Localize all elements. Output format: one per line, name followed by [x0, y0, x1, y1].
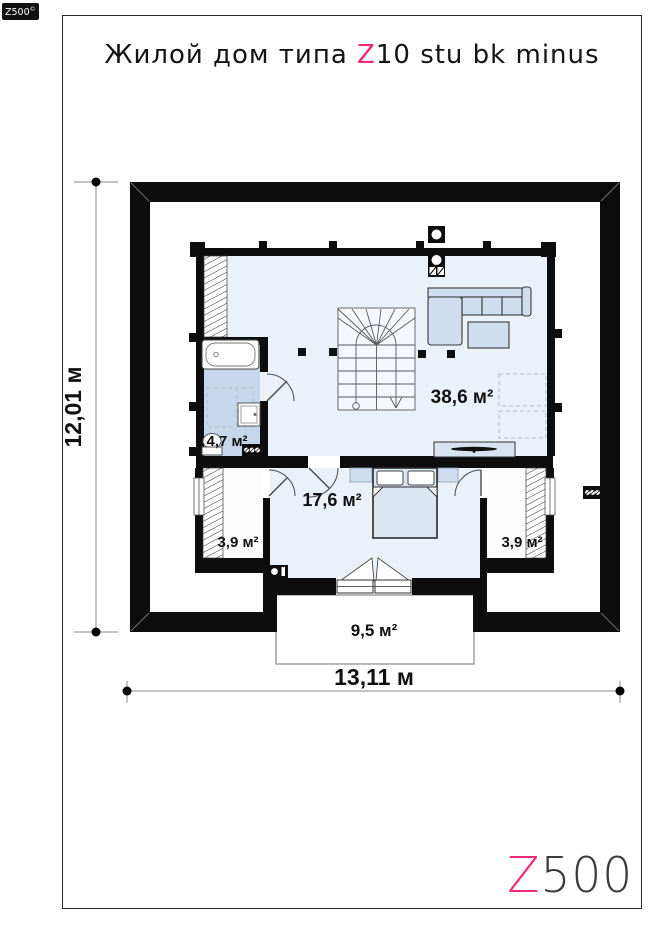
vent-grille-icon — [583, 486, 602, 499]
balcony-area-label: 9,5 м² — [351, 621, 398, 640]
staircase — [338, 308, 415, 410]
dimension-width-label: 13,11 м — [334, 664, 414, 690]
living-room-area-label: 38,6 м² — [431, 387, 494, 408]
vent-box-icon — [268, 565, 288, 578]
nightstand — [350, 468, 372, 482]
bedroom-area-label: 17,6 м² — [302, 490, 361, 510]
pillow — [408, 471, 434, 485]
window-icon — [194, 478, 204, 515]
window-icon — [545, 478, 555, 515]
bathtub — [202, 340, 259, 369]
z500-logo: Z500 — [507, 850, 633, 902]
closet-left-area-label: 3,9 м² — [217, 534, 258, 551]
logo-rest: 500 — [540, 847, 633, 904]
dimension-height-label: 12,01 м — [60, 367, 86, 448]
floor-plan: 12,01 м 13,11 м 9,5 м² — [0, 0, 655, 926]
drawing-sheet: Z500© Жилой дом типа Z10 stu bk minus 12… — [0, 0, 655, 926]
washbasin — [238, 403, 260, 426]
bathroom-area-label: 4,7 м² — [206, 433, 247, 450]
coffee-table — [468, 322, 509, 348]
dimension-height: 12,01 м — [60, 178, 118, 637]
knee-wall-top — [196, 248, 555, 256]
room-balcony: 9,5 м² — [276, 595, 474, 664]
pillow — [377, 471, 403, 485]
tv-cabinet — [434, 442, 515, 457]
chimney-icon — [428, 226, 445, 243]
closet-right-area-label: 3,9 м² — [501, 534, 542, 551]
chimney-flue-icon — [428, 252, 445, 277]
nightstand — [438, 468, 458, 482]
dimension-width: 13,11 м — [123, 664, 625, 703]
logo-accent: Z — [507, 847, 540, 904]
